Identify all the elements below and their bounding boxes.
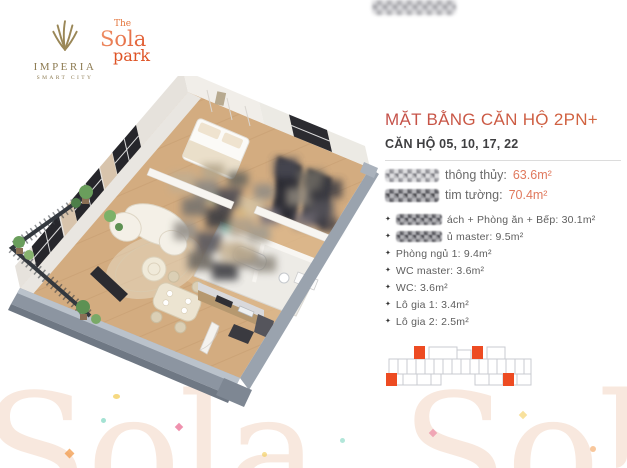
area-label: thông thủy: <box>445 168 507 182</box>
list-item: ✦ Lô gia 2: 2.5m² <box>385 313 625 330</box>
blurred-label <box>385 169 439 182</box>
page-title: MẶT BẰNG CĂN HỘ 2PN+ <box>385 110 625 130</box>
list-item: ✦ WC: 3.6m² <box>385 279 625 296</box>
unit-numbers: CĂN HỘ 05, 10, 17, 22 <box>385 137 625 151</box>
imperia-logo: IMPERIA SMART CITY <box>30 18 100 81</box>
sola-park-logo: The Sola park <box>100 20 160 64</box>
blurred-patch-top <box>372 0 456 15</box>
confetti-dot <box>590 446 596 452</box>
bullet-icon: ✦ <box>385 250 391 257</box>
bullet-icon: ✦ <box>385 284 391 291</box>
list-item: ✦ Phòng ngủ 1: 9.4m² <box>385 245 625 262</box>
page: IMPERIA SMART CITY The Sola park Sola So… <box>0 0 627 468</box>
list-item: ✦ Lô gia 1: 3.4m² <box>385 296 625 313</box>
room-detail-list: ✦ ách + Phòng ăn + Bếp: 30.1m² ✦ ủ maste… <box>385 211 625 330</box>
bullet-icon: ✦ <box>385 233 391 240</box>
imperia-tulip-icon <box>50 18 80 54</box>
area-label: tim tường: <box>445 188 503 202</box>
blurred-label <box>396 214 442 225</box>
blurred-label <box>385 189 439 202</box>
floor-plan-render <box>2 76 386 414</box>
area-value: 63.6m² <box>513 168 552 182</box>
imperia-name: IMPERIA <box>30 61 100 73</box>
bullet-icon: ✦ <box>385 318 391 325</box>
divider <box>385 160 621 161</box>
list-item: ✦ ủ master: 9.5m² <box>385 228 625 245</box>
list-item: ✦ WC master: 3.6m² <box>385 262 625 279</box>
blurred-label <box>396 231 442 242</box>
keyplan-highlighted-units <box>386 346 514 386</box>
area-row-net: thông thủy: 63.6m² <box>385 168 625 182</box>
confetti-dot <box>340 438 345 443</box>
list-item: ✦ ách + Phòng ăn + Bếp: 30.1m² <box>385 211 625 228</box>
confetti-dot <box>262 452 267 457</box>
keyplan-diagram <box>383 342 625 397</box>
bullet-icon: ✦ <box>385 267 391 274</box>
info-panel: MẶT BẰNG CĂN HỘ 2PN+ CĂN HỘ 05, 10, 17, … <box>385 110 625 397</box>
bullet-icon: ✦ <box>385 301 391 308</box>
area-value: 70.4m² <box>509 188 548 202</box>
area-row-gross: tim tường: 70.4m² <box>385 188 625 202</box>
confetti-dot <box>101 418 106 423</box>
bullet-icon: ✦ <box>385 216 391 223</box>
sola-park: park <box>113 48 160 64</box>
